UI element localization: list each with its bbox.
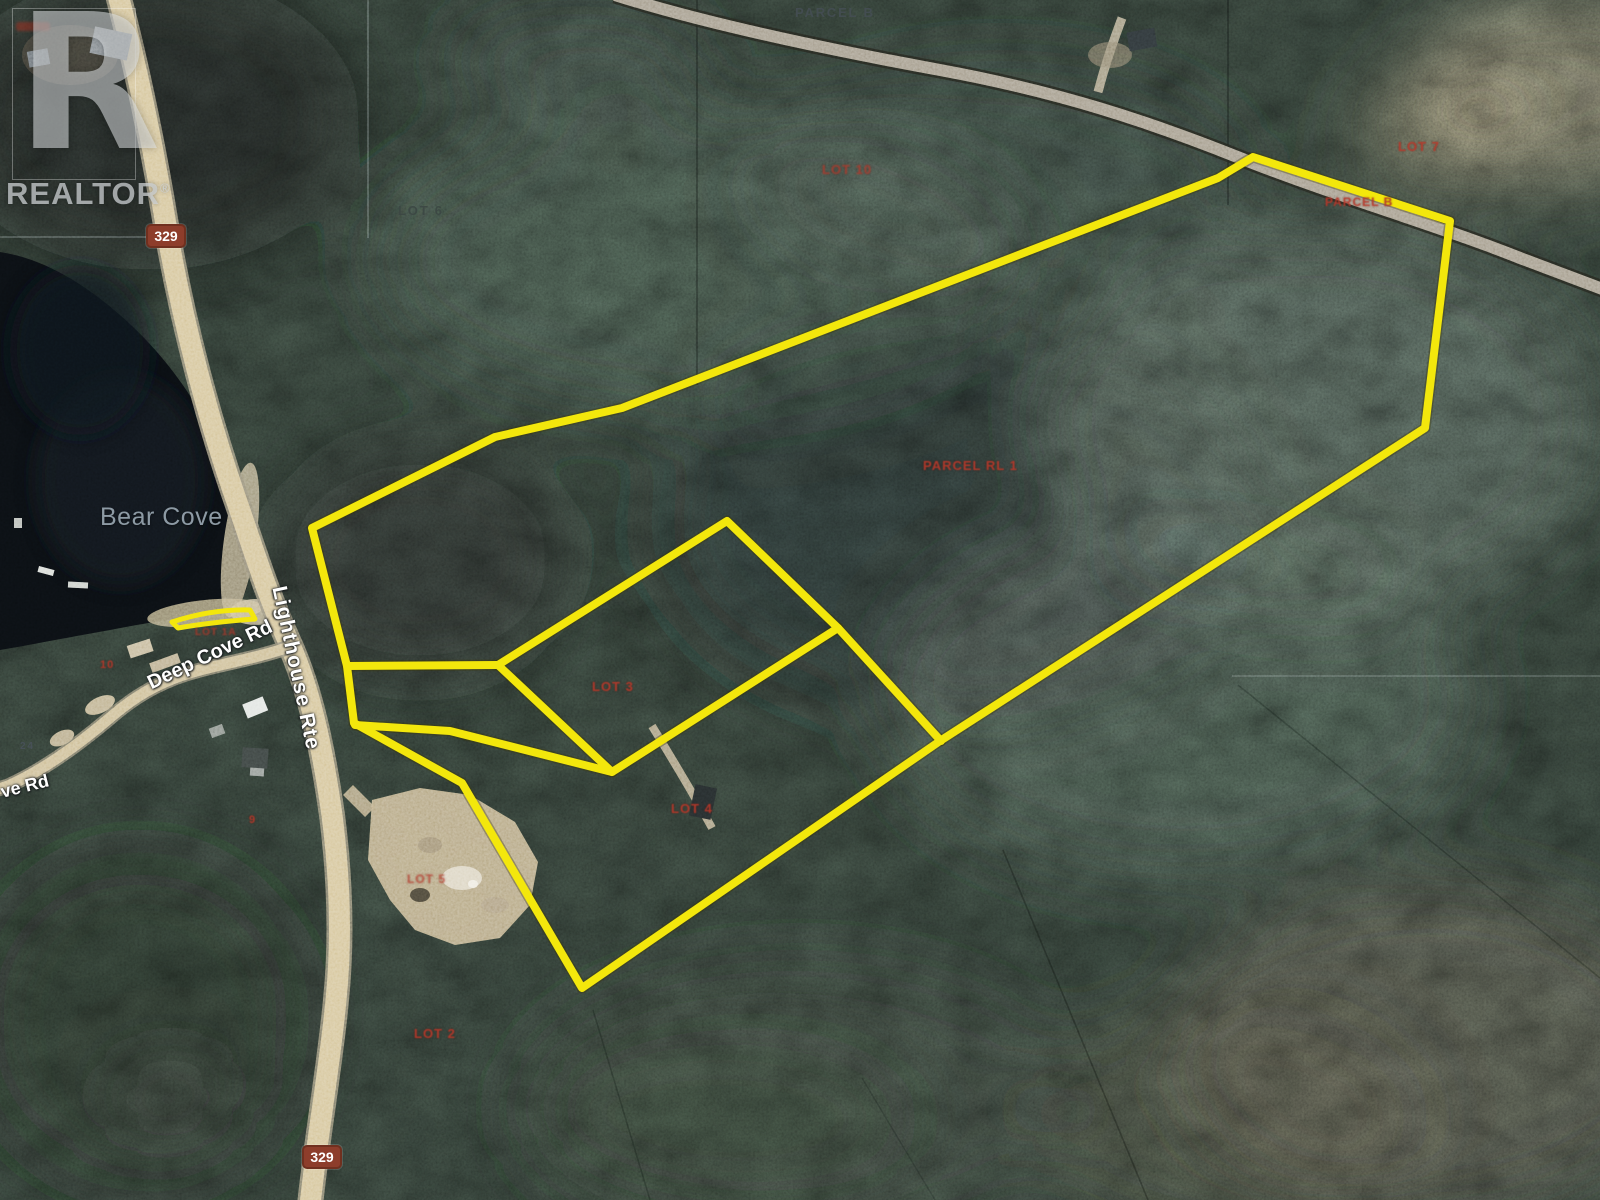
- label-layer: Bear Cove Deep Cove Rd Lighthouse Rte ve…: [0, 0, 1600, 1200]
- parcel-label-lot-3: LOT 3: [592, 679, 634, 694]
- parcel-label-lot-10: LOT 10: [822, 162, 872, 177]
- road-label-lighthouse-rte: Lighthouse Rte: [267, 584, 325, 752]
- civic-number-24: 24: [20, 741, 35, 752]
- parcel-label-lot-6: LOT 6: [398, 203, 444, 218]
- satellite-parcel-map: Bear Cove Deep Cove Rd Lighthouse Rte ve…: [0, 0, 1600, 1200]
- road-label-cove-rd-partial: ve Rd: [0, 770, 51, 802]
- realtor-wordmark: REALTOR®: [6, 176, 171, 212]
- realtor-brand-text: REALTOR: [6, 176, 160, 211]
- realtor-logo-frame: [12, 8, 136, 180]
- parcel-label-lot-2: LOT 2: [414, 1026, 456, 1041]
- realtor-watermark: R REALTOR®: [6, 4, 266, 234]
- parcel-label-parcel-b-ne: PARCEL B: [1325, 195, 1393, 209]
- parcel-label-lot-1a: LOT 1A: [195, 627, 237, 638]
- parcel-label-parcel-b-top: PARCEL B: [795, 5, 875, 20]
- registered-mark: ®: [160, 181, 171, 196]
- parcel-label-parcel-rl-1: PARCEL RL 1: [923, 458, 1018, 473]
- route-badge-329-top: 329: [146, 224, 186, 248]
- parcel-label-lot-7: LOT 7: [1398, 139, 1440, 154]
- civic-number-9: 9: [249, 814, 256, 826]
- red-marking-top-left: [16, 22, 50, 31]
- route-badge-329-bottom: 329: [302, 1145, 342, 1169]
- parcel-label-lot-4: LOT 4: [671, 801, 713, 816]
- place-label-bear-cove: Bear Cove: [100, 503, 223, 532]
- civic-number-10: 10: [100, 659, 114, 671]
- parcel-label-lot-5: LOT 5: [407, 872, 446, 886]
